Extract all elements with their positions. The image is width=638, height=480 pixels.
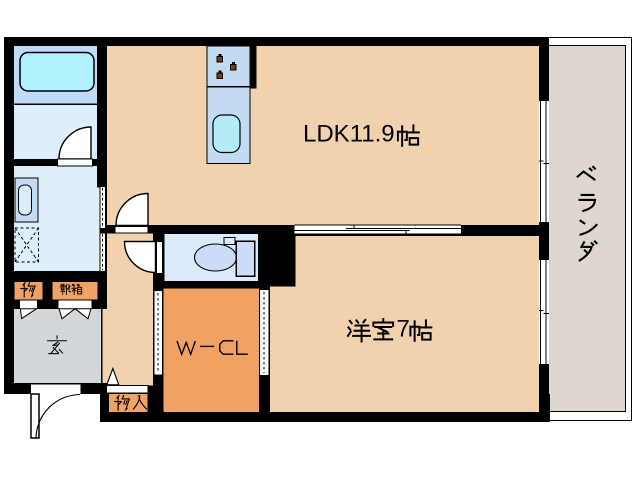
svg-text:LDK11.9: LDK11.9 — [303, 121, 395, 148]
svg-text:7: 7 — [397, 316, 410, 343]
